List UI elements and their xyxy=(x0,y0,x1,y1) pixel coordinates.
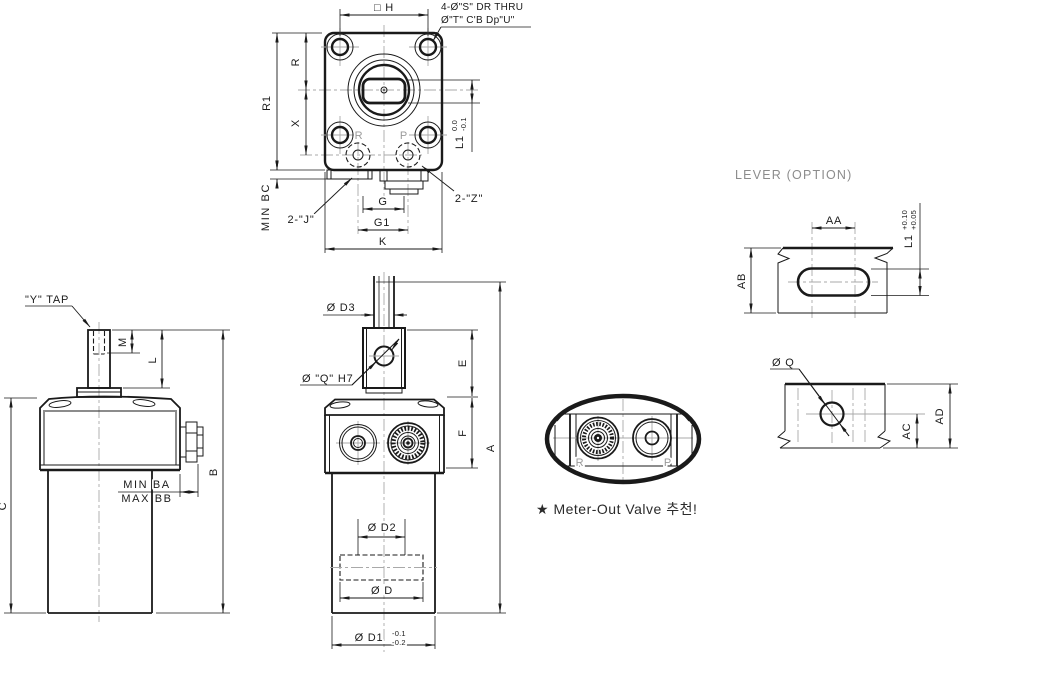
front-view: Ø D3 Ø "Q" H7 E F A Ø D2 xyxy=(300,272,506,652)
detail-port-p xyxy=(630,416,676,461)
lever-option-title: LEVER (OPTION) xyxy=(735,168,853,182)
dim-ab: AB xyxy=(736,273,748,289)
cylinder-head-front xyxy=(325,400,444,474)
dim-b: B xyxy=(208,468,220,476)
dim-min-bc: MIN BC xyxy=(260,183,272,231)
dim-l1: L1 xyxy=(454,135,466,149)
port-r-label: R xyxy=(355,130,364,142)
top-view-dimensions: □ H 4-Ø"S" DR THRU Ø"T" C'B Dp"U" R X R1… xyxy=(260,2,531,253)
dim-lever-l1: L1 xyxy=(903,234,915,248)
dim-g: G xyxy=(378,196,387,208)
drawing-sheet: R P □ H 4-Ø"S" DR THRU Ø"T" C'B Dp"U" xyxy=(0,0,1056,683)
side-view: "Y" TAP M L B C MIN BA MAX BB xyxy=(0,294,230,622)
dim-min-ba: MIN BA xyxy=(123,479,171,491)
dim-q-h7: Ø "Q" H7 xyxy=(302,373,354,385)
detail-port-r-label: R xyxy=(576,457,585,469)
dim-ad: AD xyxy=(934,408,946,425)
front-view-dimensions: Ø D3 Ø "Q" H7 E F A Ø D2 xyxy=(300,282,506,649)
dim-g1: G1 xyxy=(374,217,390,229)
dim-k: K xyxy=(379,236,387,248)
side-view-dimensions: "Y" TAP M L B C MIN BA MAX BB xyxy=(0,294,230,613)
dim-l1-group: L1 0.0 -0.1 xyxy=(450,117,468,149)
dim-lever-l1-tol-lower: +0.05 xyxy=(909,210,918,230)
dim-d2: Ø D2 xyxy=(368,522,397,534)
dim-d1-tol-lower: -0.2 xyxy=(392,638,406,647)
detail-valve-r xyxy=(575,416,621,461)
lever-hole-view: Ø Q AC AD xyxy=(770,357,958,448)
dim-ac: AC xyxy=(901,423,913,440)
technical-drawing-canvas: R P □ H 4-Ø"S" DR THRU Ø"T" C'B Dp"U" xyxy=(0,0,1056,683)
center-boss xyxy=(348,54,420,126)
detail-view: R P ★ Meter-Out Valve 추천! xyxy=(536,396,699,517)
cylinder-head-side xyxy=(40,397,180,471)
meter-out-note: ★ Meter-Out Valve 추천! xyxy=(536,501,697,517)
leader-z: 2-"Z" xyxy=(455,193,483,205)
dim-a: A xyxy=(485,444,497,452)
dim-l1-tol-lower: -0.1 xyxy=(459,117,468,131)
cylinder-tube-side xyxy=(48,470,152,613)
detail-port-p-label: P xyxy=(664,457,672,469)
dim-d: Ø D xyxy=(371,585,393,597)
dim-l: L xyxy=(147,357,159,364)
bottom-tab xyxy=(327,170,372,179)
front-port-p xyxy=(336,421,380,465)
port-p-label: P xyxy=(400,130,408,142)
dim-c: C xyxy=(0,502,9,511)
dim-h: □ H xyxy=(374,2,394,14)
dim-d1-tol-upper: -0.1 xyxy=(392,629,406,638)
drill-note-line2: Ø"T" C'B Dp"U" xyxy=(441,15,515,26)
dim-r1: R1 xyxy=(261,95,273,111)
bottom-hex-fitting xyxy=(380,170,428,194)
drill-note-line1: 4-Ø"S" DR THRU xyxy=(441,2,523,13)
dim-d3: Ø D3 xyxy=(327,302,356,314)
leader-y-tap: "Y" TAP xyxy=(25,294,69,306)
lever-option: LEVER (OPTION) AA AB L1 +0.10 +0.0 xyxy=(735,168,958,448)
dim-aa: AA xyxy=(826,215,842,227)
side-port-fitting xyxy=(180,422,203,462)
dim-lever-l1-tol-upper: +0.10 xyxy=(900,210,909,230)
front-valve-r xyxy=(386,421,430,465)
lever-slot-view: AA AB L1 +0.10 +0.05 xyxy=(736,203,929,320)
leader-j: 2-"J" xyxy=(287,214,314,226)
bolt-hole xyxy=(321,116,359,154)
dim-lever-q: Ø Q xyxy=(772,357,795,369)
top-view: R P □ H 4-Ø"S" DR THRU Ø"T" C'B Dp"U" xyxy=(260,2,531,253)
dim-m: M xyxy=(117,337,129,347)
dim-d1: Ø D1 xyxy=(355,632,384,644)
dim-x: X xyxy=(290,119,302,127)
dim-e: E xyxy=(457,359,469,367)
dim-l1-tol-upper: 0.0 xyxy=(450,120,459,131)
dim-r: R xyxy=(290,58,302,67)
dim-max-bb: MAX BB xyxy=(121,493,172,505)
dim-lever-l1-group: L1 +0.10 +0.05 xyxy=(900,210,918,248)
dim-f: F xyxy=(457,429,469,437)
